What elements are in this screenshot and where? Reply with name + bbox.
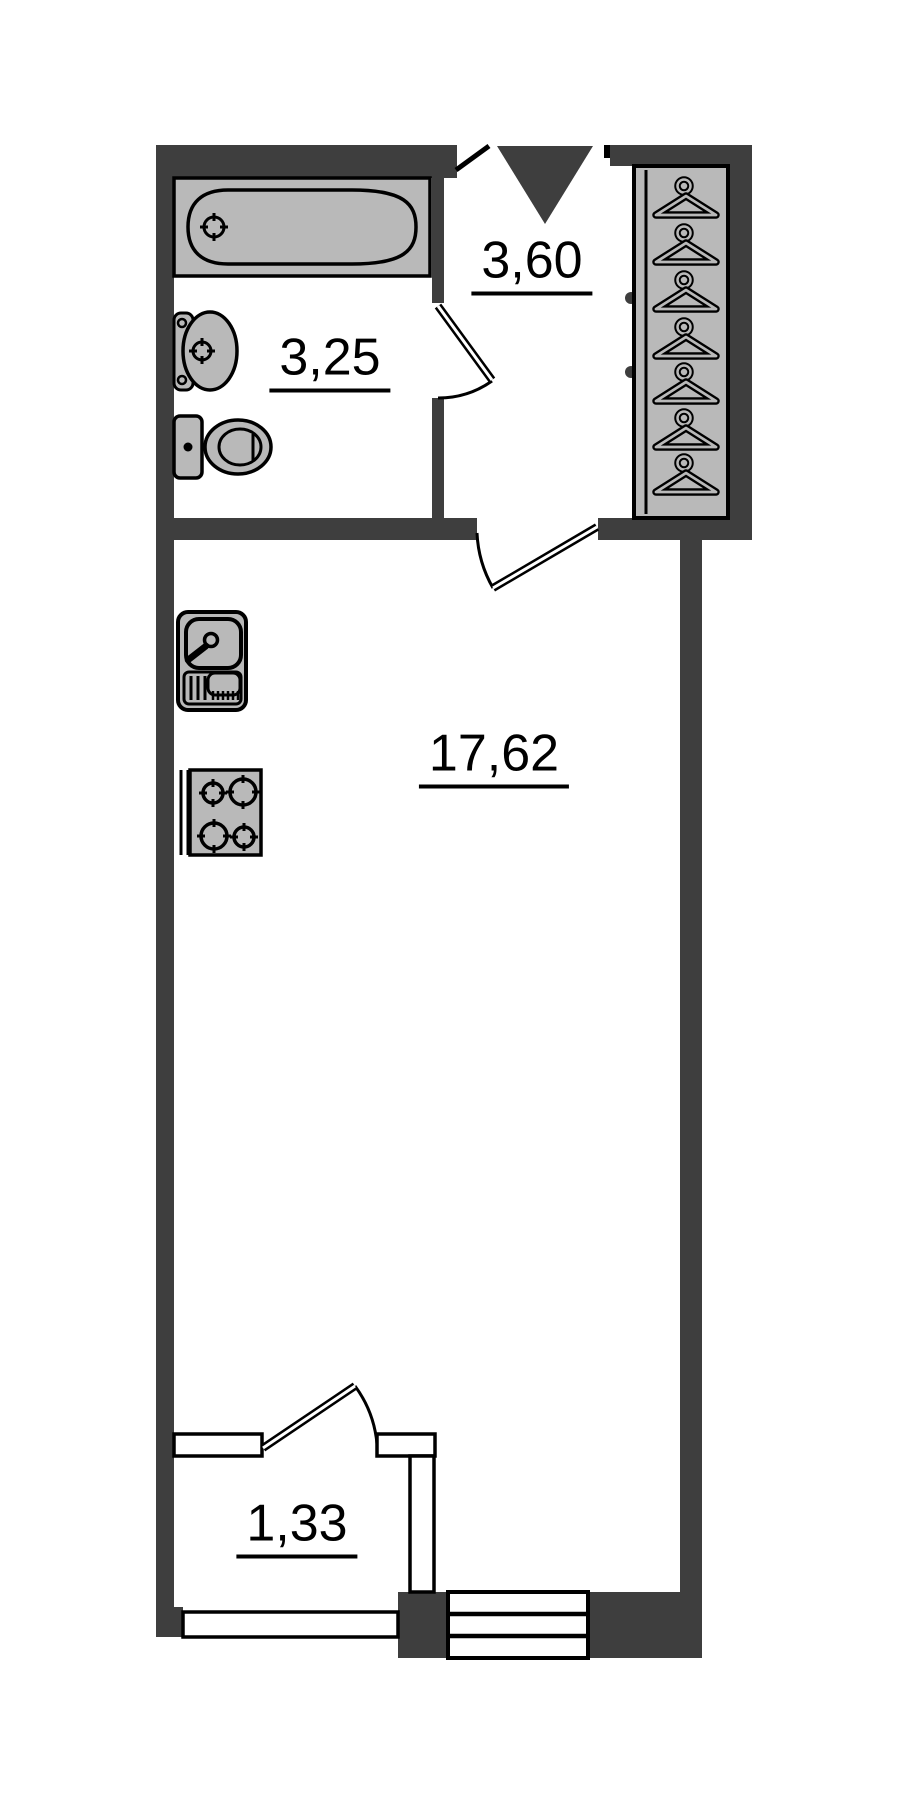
wall-bottom-right [588, 1592, 702, 1658]
wardrobe-hangers-icon [625, 166, 728, 518]
living-room-area-label: 17,62 [419, 728, 569, 789]
bathroom-area-label: 3,25 [269, 332, 390, 393]
window-icon [448, 1592, 588, 1658]
wall-mid-left [156, 518, 477, 540]
washbasin-icon [174, 312, 237, 390]
bathtub-icon [174, 178, 430, 276]
floor-plan: 3,25 3,60 17,62 1,33 [0, 0, 900, 1802]
wall-mid-right [598, 518, 752, 540]
entrance-arrow-icon [456, 146, 593, 224]
hallway-area-label: 3,60 [471, 235, 592, 296]
balcony-railing-icon [183, 1612, 398, 1637]
balcony-wall-top-left [174, 1434, 262, 1456]
wall-bath-divider-upper [432, 178, 444, 303]
wall-right-outer [730, 145, 752, 540]
stove-icon [181, 770, 261, 855]
wall-room-right [680, 540, 702, 1592]
wall-bath-divider-lower [432, 398, 444, 518]
living-room-door-swing-icon [477, 527, 597, 588]
balcony-wall-top-right [377, 1434, 435, 1456]
wall-balcony-left-block [156, 1607, 183, 1637]
floor-plan-svg [0, 0, 900, 1802]
wall-bottom-pillar [398, 1592, 448, 1658]
balcony-wall-right [410, 1456, 434, 1592]
balcony-door-swing-icon [263, 1386, 377, 1448]
wall-left [156, 145, 174, 1607]
balcony-area-label: 1,33 [236, 1498, 357, 1559]
wall-top-left [156, 145, 457, 178]
kitchen-sink-icon [178, 612, 246, 710]
toilet-icon [174, 416, 271, 478]
bathroom-door-swing-icon [438, 306, 492, 398]
